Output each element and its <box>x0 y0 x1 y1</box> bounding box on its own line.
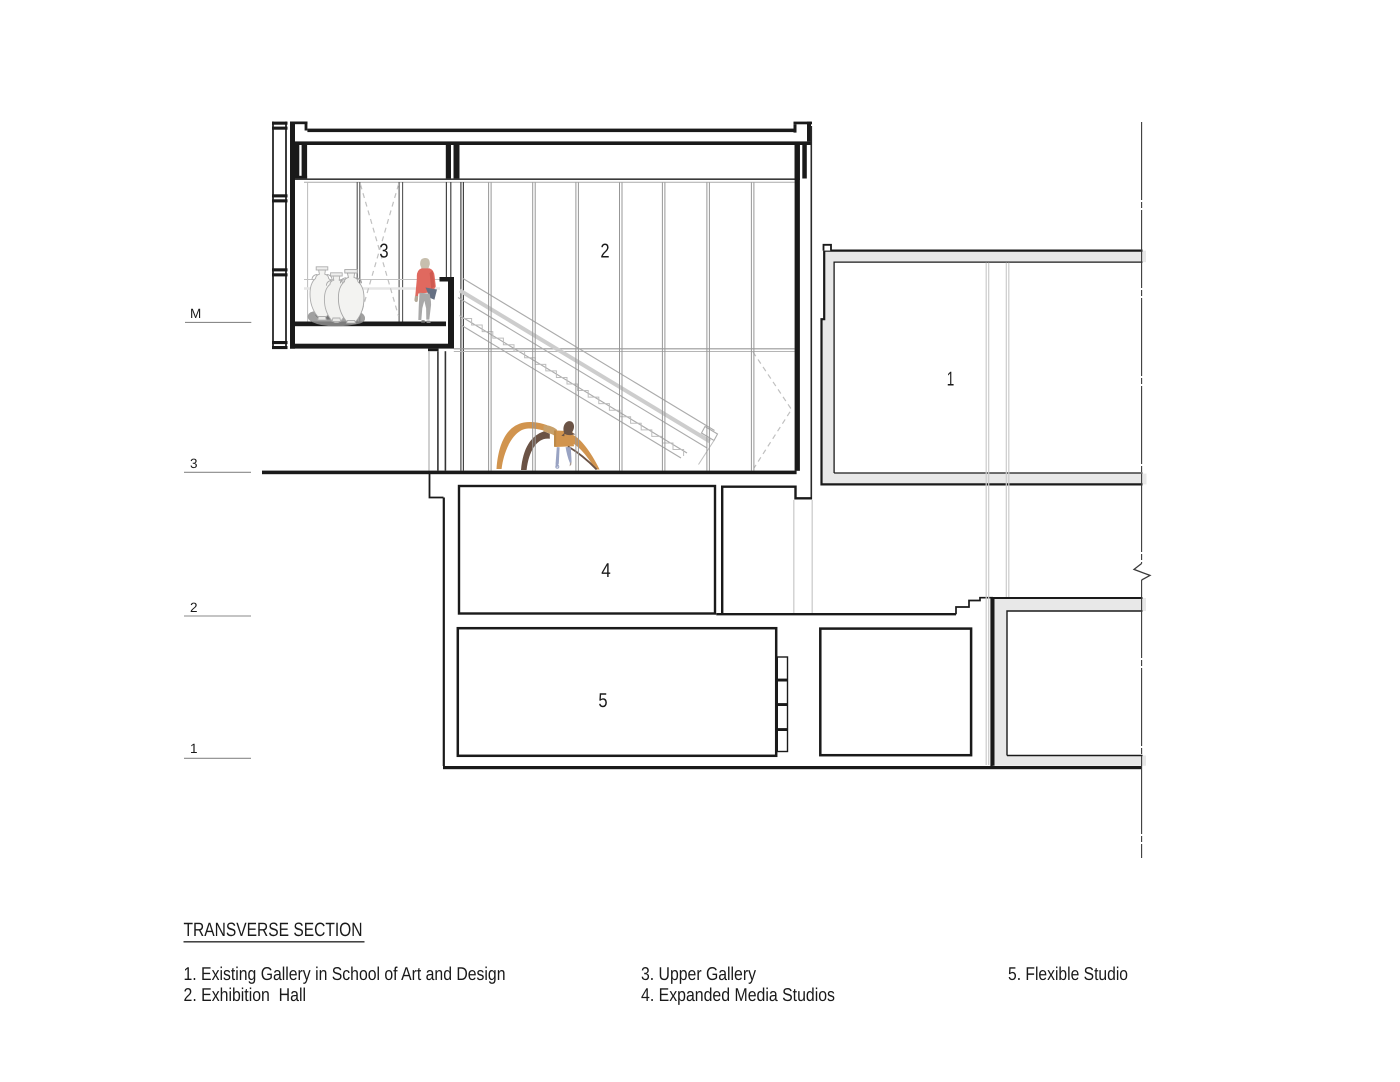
svg-text:1: 1 <box>947 369 955 391</box>
svg-text:5. Flexible Studio: 5. Flexible Studio <box>1008 963 1128 984</box>
svg-text:4: 4 <box>601 560 611 582</box>
svg-text:3: 3 <box>190 456 198 471</box>
svg-text:2. Exhibition Hall: 2. Exhibition Hall <box>184 984 307 1005</box>
svg-text:3. Upper Gallery: 3. Upper Gallery <box>641 963 757 984</box>
svg-text:2: 2 <box>600 241 609 263</box>
svg-text:4. Expanded Media Studios: 4. Expanded Media Studios <box>641 984 835 1005</box>
svg-text:M: M <box>190 306 201 321</box>
svg-text:1. Existing Gallery in School: 1. Existing Gallery in School of Art and… <box>184 963 506 984</box>
svg-text:1: 1 <box>190 741 198 756</box>
svg-text:TRANSVERSE SECTION: TRANSVERSE SECTION <box>184 920 363 941</box>
svg-text:5: 5 <box>598 690 607 712</box>
svg-text:2: 2 <box>190 600 198 615</box>
svg-text:3: 3 <box>379 241 388 263</box>
